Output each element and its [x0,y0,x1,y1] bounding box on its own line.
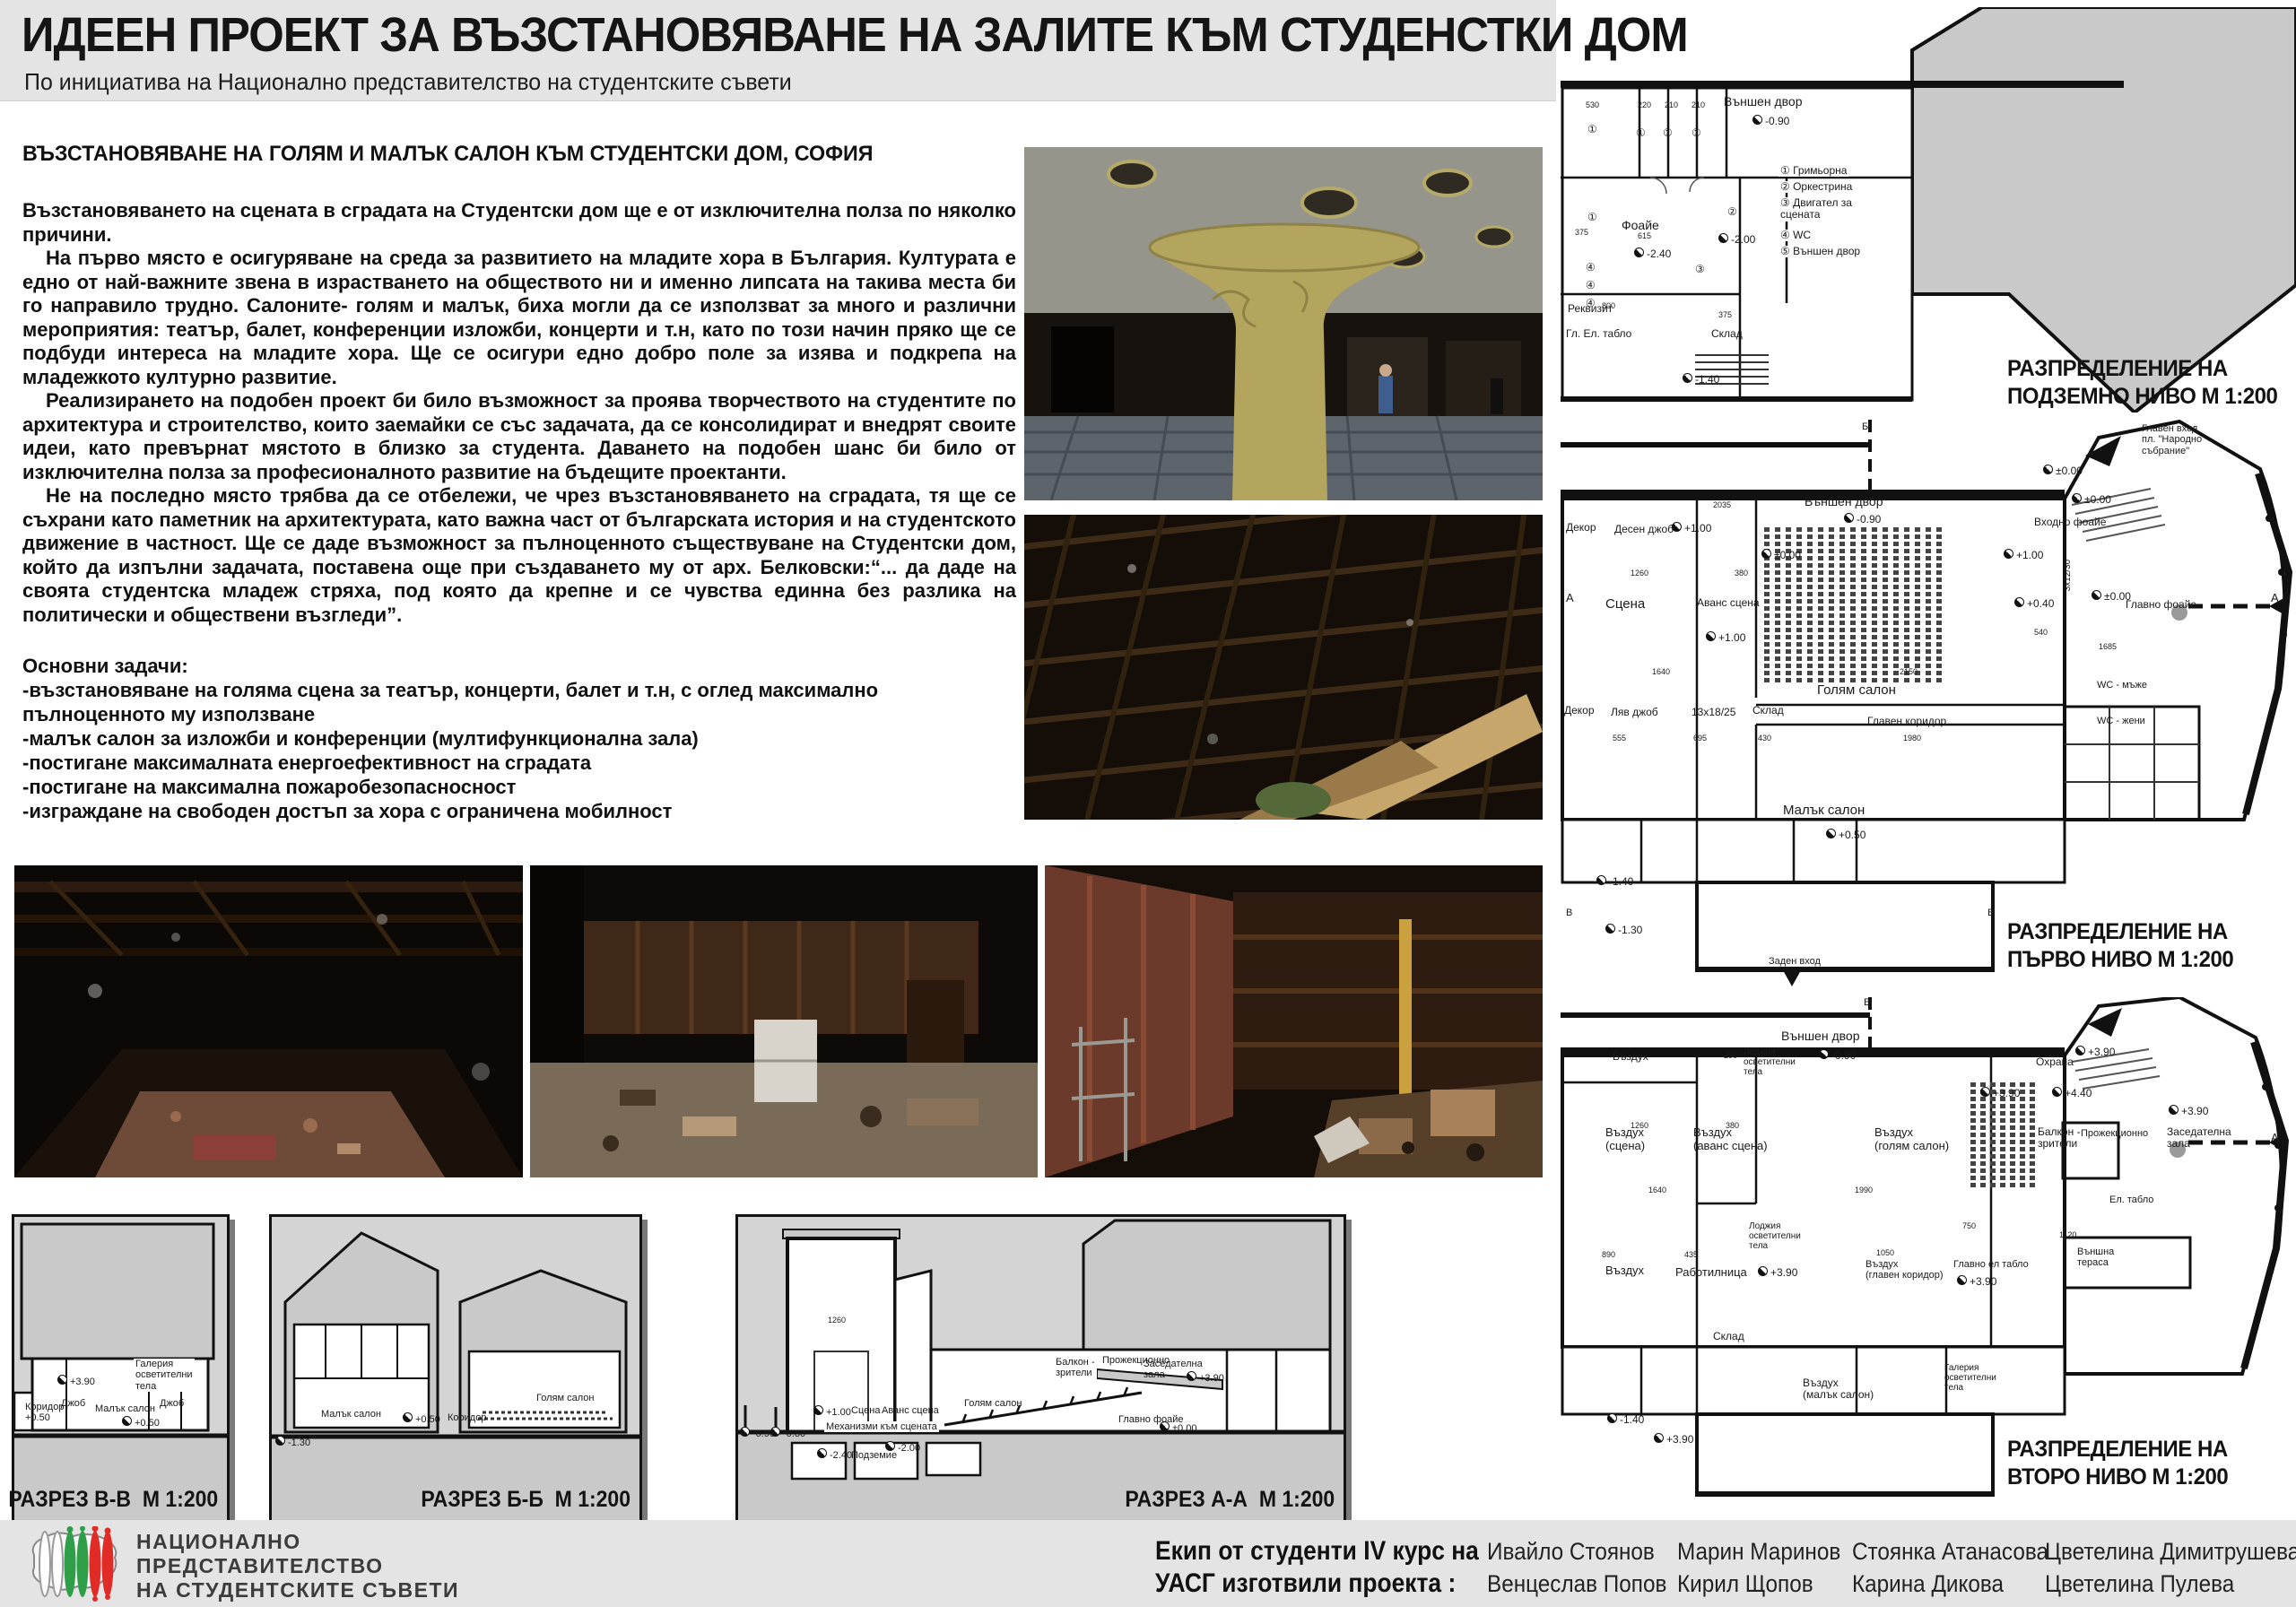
drawing-label: 800 [1602,301,1615,310]
drawing-label: Въздух [1613,1051,1648,1063]
drawing-label: Галерия осветителни тела [134,1359,195,1392]
drawing-label: Главен вход пл. "Народно събрание" [2142,423,2202,456]
drawing-label: 540 [2034,628,2048,637]
org-name: НАЦИОНАЛНО ПРЕДСТАВИТЕЛСТВО НА СТУДЕНТСК… [136,1530,459,1603]
team-member: Цветелина Пулева [2045,1568,2296,1600]
drawing-label: 890 [1602,1250,1615,1259]
drawing-label: Склад [1752,705,1784,717]
drawing-label: +1.00 [2004,549,2043,561]
plan-second-level-caption: РАЗПРЕДЕЛЕНИЕ НА ВТОРО НИВО М 1:200 [2007,1436,2228,1492]
drawing-label: -1.40 [1607,1413,1644,1426]
drawing-label: Главно фоайе [2126,599,2196,611]
drawing-label: ① [1587,124,1597,135]
drawing-label: А [1566,592,1574,605]
drawing-label: Входно фоайе [2034,517,2106,528]
drawing-label: Заден вход [1769,956,1821,967]
team-names-column: Стоянка Атанасова Карина Дикова [1852,1535,2048,1600]
section-b-b: Малък салон+0.50КоридорГолям салон-1.30 … [269,1214,642,1523]
task-item: -изграждане на свободен достъп за хора с… [22,799,1016,823]
drawing-label: Джоб [160,1398,184,1409]
task-item: -малък салон за изложби и конференции (м… [22,726,1016,751]
drawing-label: ④ WC [1779,230,1813,241]
drawing-label: Въздух (голям салон) [1874,1126,1949,1152]
team-names-column: Цветелина Димитрушева Цветелина Пулева [2045,1535,2296,1600]
drawing-label: ±0.00 [2043,465,2083,477]
plan-basement-drawing [1561,7,2296,413]
drawing-label: -1.30 [275,1436,310,1448]
drawing-label: 1260 [1631,569,1648,578]
drawing-label: Главно ел табло [1953,1259,2029,1270]
drawing-label: Прожекционно [2081,1128,2148,1139]
drawing-label: Заседателна зала [2167,1126,2231,1151]
photo-foyer-column [1024,147,1543,500]
article-paragraph: Реализирането на подобен проект би било … [22,389,1016,484]
drawing-label: ① Гримьорна [1779,165,1848,177]
team-member: Стоянка Атанасова [1852,1535,2048,1568]
drawing-label: 380 [1726,1121,1739,1130]
drawing-label: Работилница [1675,1266,1747,1280]
drawing-label: Сцена [851,1405,880,1416]
drawing-label: -0.90 [1752,115,1789,127]
photo-coffered-ceiling [1024,515,1543,820]
drawing-label: WC - мъже [2097,680,2147,691]
drawing-label: 220 [1638,100,1651,109]
drawing-label: +3.90 [1980,1087,2020,1099]
photo-room-debris [530,865,1038,1177]
photo-hall-ruin-image [14,865,523,1177]
plan-basement: Външен двор-0.90①①①①①②③④④④Фоайе-2.40-2.0… [1561,7,2296,413]
drawing-label: В [1987,908,1994,918]
page-title: ИДЕЕН ПРОЕКТ ЗА ВЪЗСТАНОВЯВАНЕ НА ЗАЛИТЕ… [22,7,1688,63]
drawing-label: 1260 [828,1316,846,1325]
drawing-label: 530 [1586,100,1599,109]
drawing-label: ② Оркестрина [1779,181,1854,193]
drawing-label: Балкон - зрители [2038,1126,2081,1151]
drawing-label: +3.90 [2075,1046,2115,1058]
drawing-label: +0.50 [122,1416,160,1429]
drawing-label: Малък салон [321,1409,381,1420]
team-names-column: Ивайло Стоянов Венцеслав Попов [1487,1535,1666,1600]
drawing-label: -1.40 [1683,373,1719,386]
drawing-label: Аванс сцена [1697,597,1760,609]
drawing-label: Механизми към сцената [824,1421,939,1432]
drawing-label: Въздух (малък салон) [1803,1377,1874,1402]
section-a-a-caption: РАЗРЕЗ А-А М 1:200 [1125,1487,1335,1513]
drawing-label: Сцена [1605,597,1645,612]
drawing-label: 13x18/25 [1692,707,1735,718]
drawing-label: Галерия осветителни тела [1944,1363,1996,1394]
plan-basement-caption: РАЗПРЕДЕЛЕНИЕ НА ПОДЗЕМНО НИВО М 1:200 [2007,355,2277,412]
drawing-label: 1990 [1855,1186,1873,1194]
drawing-label: Ел. табло [2109,1194,2153,1205]
drawing-label: Външен двор [1805,495,1883,509]
drawing-label: 375 [1575,228,1588,237]
photo-room-debris-image [530,865,1038,1177]
drawing-label: +0.50 [403,1412,440,1425]
drawing-label: 1120 [2059,1230,2076,1239]
drawing-label: 2150 [1900,667,1918,676]
drawing-label: +4.40 [2052,1087,2092,1099]
photo-hall-ruin [14,865,523,1177]
drawing-label: Коридор [448,1412,486,1423]
drawing-label: ① [1587,212,1597,223]
team-heading: Екип от студенти IV курс на УАСГ изготви… [1155,1535,1479,1600]
section-v-v: Галерия осветителни тела+3.90Коридор +0.… [12,1214,230,1523]
drawing-label: -2.40 [817,1448,852,1461]
drawing-label: В [1566,908,1572,918]
nps-logo-icon [25,1526,126,1602]
drawing-label: 1980 [1903,734,1921,743]
section-a-a: +1.00СценаАванс сценаГолям салонМеханизм… [735,1214,1346,1523]
drawing-label: +3.90 [57,1375,95,1387]
task-item: -постигане на максимална пожаробезопасно… [22,775,1016,799]
section-b-b-caption: РАЗРЕЗ Б-Б М 1:200 [421,1487,631,1513]
drawing-label: ⑤ Външен двор [1779,246,1862,257]
team-member: Цветелина Димитрушева [2045,1535,2296,1568]
section-v-v-drawing [14,1217,227,1520]
drawing-label: ④ [1586,280,1596,291]
photo-coffered-ceiling-image [1024,515,1543,820]
drawing-label: +3.90 [1957,1275,1996,1288]
task-item: -постигане максималната енергоефективнос… [22,751,1016,775]
article-paragraph: Не на последно място трябва да се отбеле… [22,484,1016,627]
tasks-heading: Основни задачи: [22,654,1016,678]
drawing-label: 1685 [2099,642,2117,651]
plan-first-level-drawing [1561,420,2296,994]
drawing-label: ① [1636,127,1646,139]
article: ВЪЗСТАНОВЯВАНЕ НА ГОЛЯМ И МАЛЪК САЛОН КЪ… [22,142,1016,823]
plan-second-level: Външен двор-0.90ВъздухЛоджия осветителни… [1561,997,2296,1514]
task-item: -възстановяване на голяма сцена за театъ… [22,678,1016,726]
article-heading: ВЪЗСТАНОВЯВАНЕ НА ГОЛЯМ И МАЛЪК САЛОН КЪ… [22,142,987,167]
drawing-label: Голям салон [536,1393,594,1403]
drawing-label: А [2271,1132,2279,1145]
drawing-label: ① [1692,127,1701,139]
drawing-label: Въздух [1605,1264,1644,1278]
drawing-label: Декор [1566,522,1596,534]
drawing-label: Външен двор [1724,95,1802,109]
drawing-label: Ляв джоб [1611,707,1658,718]
team-member: Кирил Щопов [1677,1568,1840,1600]
photo-foyer-column-image [1024,147,1543,500]
drawing-label: -0.90 [1819,1049,1856,1062]
section-b-b-drawing [272,1217,639,1520]
drawing-label: 1050 [1876,1248,1894,1257]
drawing-label: 375 [1718,310,1732,319]
drawing-label: 290 [1724,1051,1737,1060]
team-member: Карина Дикова [1852,1568,2048,1600]
drawing-label: 435 [1684,1250,1698,1259]
drawing-label: ③ Двигател за сцената [1779,197,1854,222]
drawing-label: -1.30 [1605,924,1642,936]
drawing-label: ① [1663,127,1673,139]
photo-backstage-clutter-image [1045,865,1543,1177]
drawing-label: Въздух (главен коридор) [1865,1259,1944,1281]
team-member: Марин Маринов [1677,1535,1840,1568]
drawing-label: +3.90 [1187,1371,1224,1384]
drawing-label: -0.90 [1844,513,1881,526]
drawing-label: Б [1862,421,1868,432]
drawing-label: WC - жени [2097,716,2145,726]
drawing-label: -1.40 [1596,875,1633,888]
drawing-label: Голям салон [964,1398,1022,1409]
drawing-label: -2.00 [885,1441,920,1454]
drawing-label: Джоб [61,1398,85,1409]
drawing-label: 1260 [1631,1121,1648,1130]
drawing-label: 210 [1692,100,1705,109]
drawing-label: Голям салон [1817,683,1896,699]
drawing-label: 1640 [1648,1186,1666,1194]
drawing-label: 1640 [1652,667,1670,676]
drawing-label: 750 [1962,1221,1976,1230]
drawing-label: Лоджия осветителни тела [1744,1047,1796,1078]
drawing-label: А [2271,592,2279,605]
drawing-label: Склад [1713,1331,1744,1342]
drawing-label: Лоджия осветителни тела [1749,1221,1801,1252]
drawing-label: ±0.00 [1160,1421,1196,1434]
photo-backstage-clutter [1045,865,1543,1177]
drawing-label: -2.00 [1718,233,1755,246]
drawing-label: +1.00 [813,1405,851,1418]
drawing-label: ③ [1695,264,1705,275]
article-paragraph: На първо място е осигуряване на среда за… [22,247,1016,389]
drawing-label: Балкон - зрители [1054,1357,1097,1379]
drawing-label: 210 [1665,100,1678,109]
drawing-label: Малък салон [95,1403,155,1414]
drawing-label: ④ [1586,262,1596,274]
drawing-label: Главен коридор [1867,716,1946,727]
drawing-label: Външна тераса [2077,1247,2114,1269]
drawing-label: +3.90 [2169,1105,2208,1117]
drawing-label: +3.90 [1654,1433,1693,1446]
drawing-label: -2.40 [1634,248,1671,260]
drawing-label: Б [1864,997,1870,1008]
drawing-label: +1.00 [1672,522,1711,534]
drawing-label: 695 [1693,734,1707,743]
drawing-label: ±0.00 [1761,549,1801,561]
drawing-label: Десен джоб [1614,524,1674,535]
drawing-label: 430 [1758,734,1771,743]
drawing-label: Аванс сцена [882,1405,939,1416]
drawing-label: 380 [1735,569,1748,578]
drawing-label: Декор [1564,705,1595,717]
drawing-label: Въздух (аванс сцена) [1693,1126,1768,1152]
page-subtitle: По инициатива на Национално представител… [24,68,792,96]
drawing-label: ±0.00 [2072,493,2111,506]
drawing-label: 555 [1613,734,1626,743]
drawing-label: Външен двор [1781,1029,1859,1044]
drawing-label: 3x12/30 [2063,560,2073,592]
section-v-v-caption: РАЗРЕЗ В-В М 1:200 [8,1487,218,1513]
drawing-label: Склад [1711,328,1743,340]
plan-first-level: Външен двор-0.90ДекорДесен джоб+1.00±0.0… [1561,420,2296,994]
drawing-label: Охрана [2036,1056,2074,1068]
team-member: Венцеслав Попов [1487,1568,1666,1600]
plan-first-level-caption: РАЗПРЕДЕЛЕНИЕ НА ПЪРВО НИВО М 1:200 [2007,918,2233,975]
drawing-label: -0.80 [770,1427,805,1439]
drawing-label: +0.40 [2014,597,2054,610]
team-names-column: Марин Маринов Кирил Щопов [1677,1535,1840,1600]
drawing-label: 615 [1638,231,1651,240]
drawing-label: +3.90 [1758,1266,1797,1279]
drawing-label: ② [1727,206,1737,218]
drawing-label: Малък салон [1783,803,1865,819]
article-paragraph: Възстановяването на сцената в сградата н… [22,199,1016,247]
drawing-label: +1.00 [1706,631,1745,644]
drawing-label: 2035 [1713,500,1731,509]
drawing-label: +0.50 [1826,829,1865,841]
team-member: Ивайло Стоянов [1487,1535,1666,1568]
drawing-label: Въздух (сцена) [1605,1126,1645,1152]
drawing-label: Гл. Ел. табло [1566,328,1631,340]
section-a-a-drawing [738,1217,1344,1520]
drawing-label: Коридор +0.50 [25,1402,64,1424]
